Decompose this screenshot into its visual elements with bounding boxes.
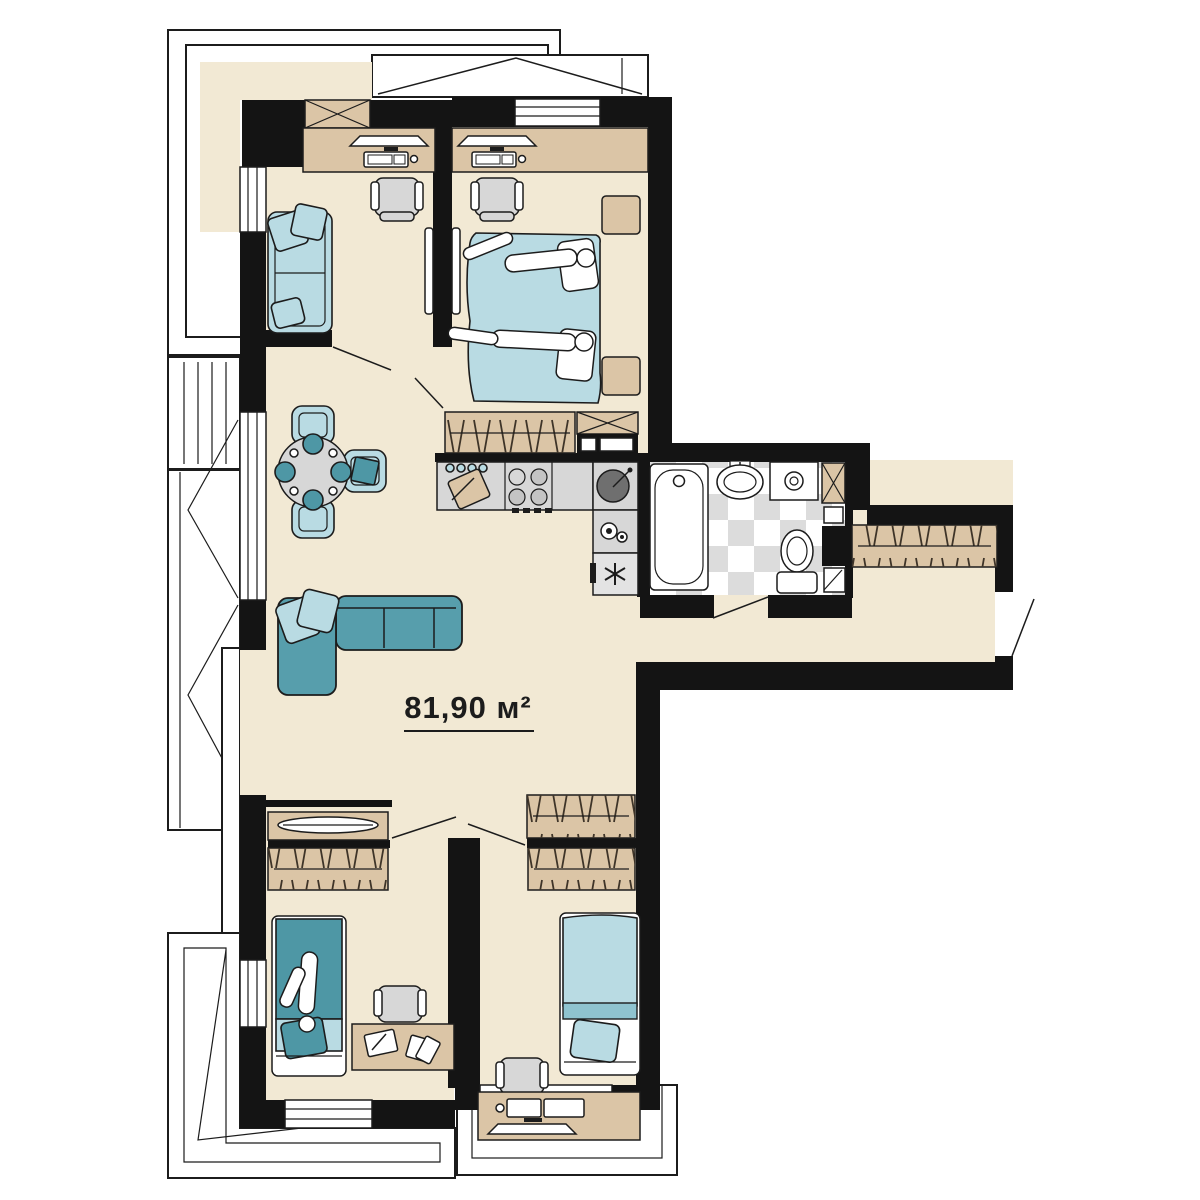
entry-door-gap — [995, 592, 1013, 656]
mouse-icon — [496, 1104, 504, 1112]
computer-icon — [507, 1099, 541, 1117]
plate-icon — [331, 462, 351, 482]
floor-plan-page: 81,90 м² — [0, 0, 1200, 1200]
washing-machine-icon — [770, 462, 818, 500]
plate-icon — [303, 490, 323, 510]
kitchen-sink-icon — [593, 462, 638, 510]
toilet-icon — [777, 530, 817, 593]
mouse-icon — [519, 156, 526, 163]
left-service-balcony — [168, 357, 240, 469]
chair-icon — [371, 178, 423, 221]
desk-icon — [478, 1092, 640, 1140]
monitor-icon — [350, 136, 428, 146]
entry-door-swing-icon — [1012, 599, 1034, 656]
monitor-icon — [458, 136, 536, 146]
window-icon — [240, 960, 266, 1027]
wardrobe-icon — [268, 848, 388, 890]
vent-shaft-icon — [822, 463, 845, 592]
sofa-icon — [267, 203, 332, 333]
nightstand-icon — [602, 196, 640, 234]
monitor-stand — [384, 147, 398, 151]
mouse-icon — [411, 156, 418, 163]
chair-icon — [374, 986, 426, 1022]
left-ledge — [222, 648, 240, 933]
chair-icon — [496, 1058, 548, 1094]
single-bed-icon — [272, 916, 346, 1076]
wardrobe-icon — [528, 848, 635, 890]
floor-plan: 81,90 м² — [0, 0, 1200, 1200]
vent-shaft-icon — [577, 412, 638, 455]
wardrobe-icon — [527, 795, 635, 838]
napkin-icon — [351, 457, 379, 485]
small-appliance-icon — [593, 510, 638, 553]
chair-icon — [471, 178, 523, 221]
nightstand-icon — [602, 357, 640, 395]
wardrobe-icon — [852, 525, 997, 567]
double-bed-icon — [447, 231, 600, 403]
pillow-icon — [570, 1019, 621, 1063]
living-floor-notch — [240, 648, 266, 795]
computer-icon — [544, 1099, 584, 1117]
window-icon — [240, 167, 266, 232]
window-icon — [515, 99, 600, 126]
wardrobe-icon — [445, 412, 575, 453]
area-label: 81,90 м² — [404, 690, 531, 725]
keyboard-icon — [488, 1124, 576, 1134]
top-window-icon — [372, 55, 648, 97]
hallway — [852, 525, 997, 567]
single-bed-icon — [560, 913, 640, 1075]
window-icon — [285, 1100, 372, 1128]
shelf-icon — [268, 812, 388, 840]
window-icon — [240, 412, 266, 600]
desk-icon — [352, 1024, 454, 1070]
pillow-icon — [290, 203, 328, 241]
plate-icon — [275, 462, 295, 482]
plate-icon — [303, 434, 323, 454]
bathtub-icon — [650, 464, 708, 590]
fridge-icon — [590, 553, 638, 595]
vent-shaft-icon — [305, 100, 370, 128]
